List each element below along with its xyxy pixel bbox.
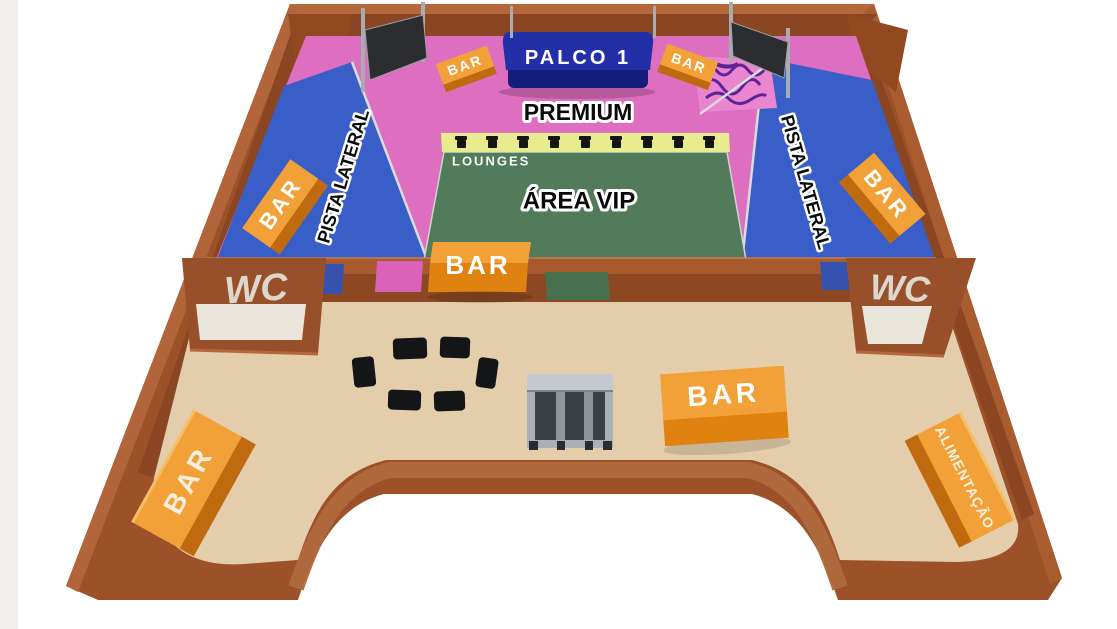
gate-opening-green-center	[545, 272, 610, 300]
entrance-gate	[527, 374, 613, 450]
venue-map-svg: WC WC BAR PALCO 1 BAR BAR	[0, 0, 1117, 629]
wc-left-label: WC	[223, 266, 290, 312]
lounge-chair-icons	[455, 136, 715, 148]
bar-vip-wall-label: BAR	[445, 250, 510, 280]
stage-label: PALCO 1	[525, 47, 631, 69]
bar-lower-center: BAR	[658, 366, 792, 459]
left-margin-strip	[0, 0, 18, 629]
stage-pole-right	[653, 6, 656, 38]
lounges-label: LOUNGES	[452, 154, 530, 169]
gate-opening-pink-left	[375, 261, 423, 292]
wall-top-highlight	[287, 4, 877, 14]
vip-label: ÁREA VIP	[523, 186, 635, 214]
wc-right-label: WC	[869, 266, 932, 310]
venue-map-image: WC WC BAR PALCO 1 BAR BAR	[0, 0, 1117, 629]
stage-pole-left	[510, 6, 513, 38]
bar-lower-center-label: BAR	[686, 376, 761, 412]
bar-vip-wall: BAR	[428, 242, 532, 303]
stage-palco1: PALCO 1	[499, 32, 655, 99]
premium-label: PREMIUM	[524, 99, 633, 125]
